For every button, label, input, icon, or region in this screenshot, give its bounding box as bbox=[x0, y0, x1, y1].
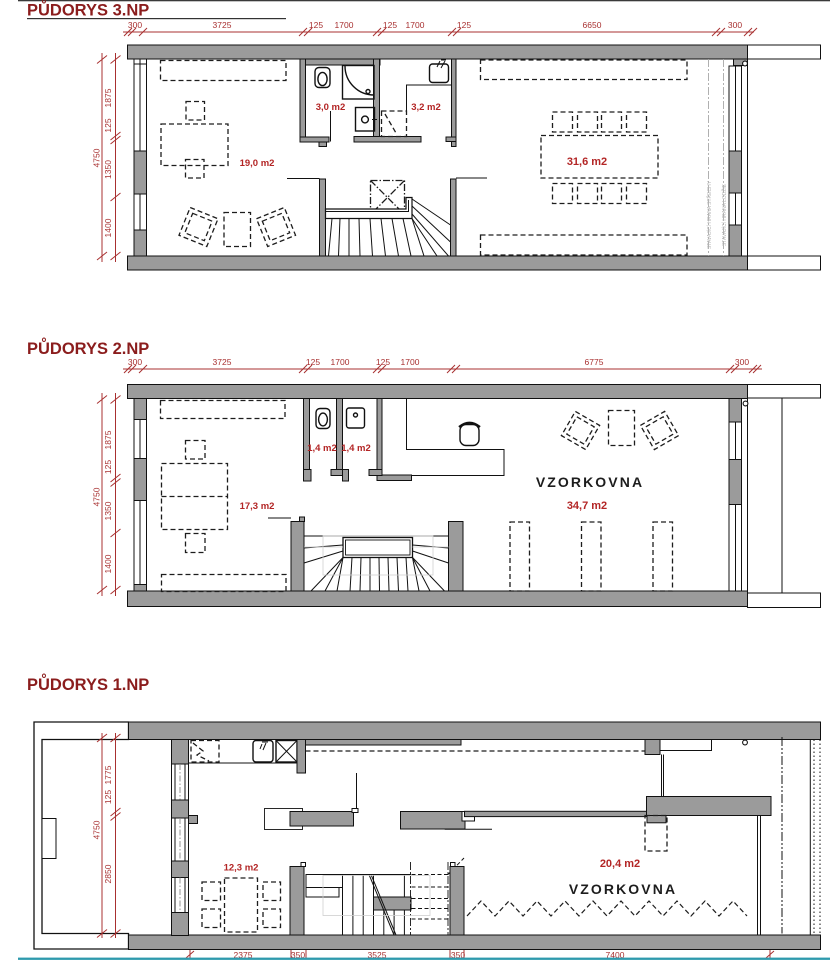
svg-text:STAVAJÍCÍ HRANA STŘECHY: STAVAJÍCÍ HRANA STŘECHY bbox=[705, 180, 713, 249]
svg-text:PŮDORYS 3.NP: PŮDORYS 3.NP bbox=[27, 0, 149, 20]
svg-text:1700: 1700 bbox=[335, 20, 354, 30]
svg-text:3725: 3725 bbox=[213, 357, 232, 367]
svg-text:4750: 4750 bbox=[92, 487, 102, 506]
svg-text:125: 125 bbox=[103, 118, 113, 132]
svg-text:31,6 m2: 31,6 m2 bbox=[567, 156, 607, 168]
svg-text:125: 125 bbox=[376, 357, 390, 367]
svg-text:300: 300 bbox=[128, 20, 142, 30]
svg-text:12,3 m2: 12,3 m2 bbox=[224, 863, 259, 874]
svg-text:300: 300 bbox=[735, 357, 749, 367]
svg-text:6650: 6650 bbox=[583, 20, 602, 30]
svg-text:1400: 1400 bbox=[103, 218, 113, 237]
svg-text:1,4 m2: 1,4 m2 bbox=[341, 443, 371, 454]
svg-text:1350: 1350 bbox=[103, 160, 113, 179]
svg-text:1700: 1700 bbox=[401, 357, 420, 367]
svg-text:125: 125 bbox=[103, 460, 113, 474]
svg-text:3,2 m2: 3,2 m2 bbox=[411, 102, 441, 113]
svg-text:2850: 2850 bbox=[103, 864, 113, 883]
svg-text:19,0 m2: 19,0 m2 bbox=[240, 158, 275, 169]
svg-text:1700: 1700 bbox=[331, 357, 350, 367]
svg-text:1875: 1875 bbox=[103, 88, 113, 107]
svg-text:17,3 m2: 17,3 m2 bbox=[240, 501, 275, 512]
svg-text:300: 300 bbox=[128, 357, 142, 367]
svg-text:1700: 1700 bbox=[406, 20, 425, 30]
svg-text:STAVAJÍCÍ HRANA LODŽIE: STAVAJÍCÍ HRANA LODŽIE bbox=[720, 183, 728, 246]
svg-text:6775: 6775 bbox=[585, 357, 604, 367]
svg-text:PŮDORYS 2.NP: PŮDORYS 2.NP bbox=[27, 338, 149, 358]
svg-text:34,7 m2: 34,7 m2 bbox=[567, 500, 607, 512]
svg-text:PŮDORYS 1.NP: PŮDORYS 1.NP bbox=[27, 674, 149, 694]
svg-text:125: 125 bbox=[309, 20, 323, 30]
svg-text:125: 125 bbox=[457, 20, 471, 30]
svg-text:3725: 3725 bbox=[213, 20, 232, 30]
svg-text:1875: 1875 bbox=[103, 430, 113, 449]
svg-text:3,0 m2: 3,0 m2 bbox=[316, 102, 346, 113]
svg-text:125: 125 bbox=[383, 20, 397, 30]
svg-text:125: 125 bbox=[306, 357, 320, 367]
svg-text:VZORKOVNA: VZORKOVNA bbox=[536, 474, 644, 490]
svg-text:4750: 4750 bbox=[92, 820, 102, 839]
svg-text:VZORKOVNA: VZORKOVNA bbox=[569, 881, 677, 897]
svg-text:125: 125 bbox=[103, 790, 113, 804]
svg-text:1,4 m2: 1,4 m2 bbox=[307, 443, 337, 454]
svg-text:1350: 1350 bbox=[103, 501, 113, 520]
svg-text:1775: 1775 bbox=[103, 765, 113, 784]
svg-text:20,4 m2: 20,4 m2 bbox=[600, 858, 640, 870]
svg-text:1400: 1400 bbox=[103, 554, 113, 573]
svg-text:4750: 4750 bbox=[92, 148, 102, 167]
svg-text:300: 300 bbox=[728, 20, 742, 30]
